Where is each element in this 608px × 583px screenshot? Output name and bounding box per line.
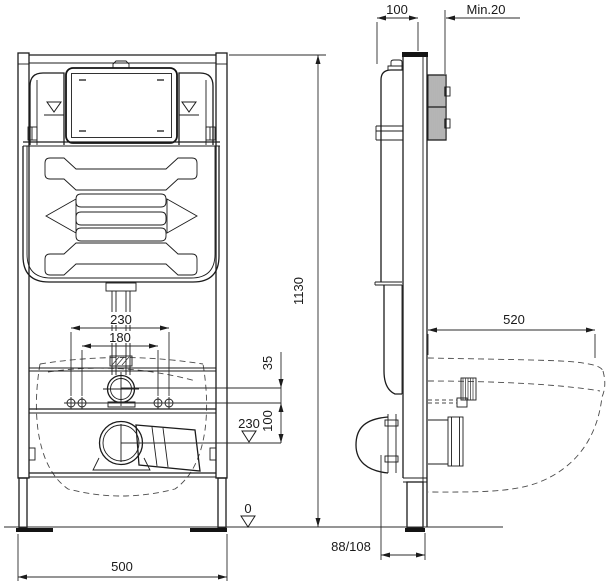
level-label: 230 xyxy=(238,416,260,431)
side-foot-plate xyxy=(405,528,425,532)
left-arrow-emboss xyxy=(46,199,76,233)
left-leg-clamp xyxy=(29,448,35,460)
dim-bolt-spacing-outer: 230 xyxy=(71,312,169,396)
side-view xyxy=(356,52,605,532)
top-tab xyxy=(113,61,129,68)
outlet-elbow xyxy=(93,422,200,472)
flush-pipe xyxy=(106,283,136,375)
access-window xyxy=(66,61,177,143)
frame xyxy=(16,53,227,532)
dim-wall-min: Min.20 xyxy=(445,2,520,74)
dim-label: 1130 xyxy=(291,277,306,305)
tank-emboss-pattern xyxy=(45,158,197,275)
actuator-plate xyxy=(428,75,450,140)
rail-top-cap xyxy=(402,52,428,57)
supply-connection xyxy=(428,378,476,407)
dim-offset-100: 100 xyxy=(260,410,275,432)
dim-label: 180 xyxy=(109,330,131,345)
left-foot-plate xyxy=(16,528,53,532)
right-leg xyxy=(218,478,226,528)
toilet-bowl-outline-side xyxy=(428,358,605,492)
level-mark-floor: 0 xyxy=(241,501,255,527)
installation-drawing-canvas: 100 Min.20 1130 230 180 xyxy=(0,0,608,583)
front-view xyxy=(16,53,227,532)
dim-label: 230 xyxy=(110,312,132,327)
dim-label: 100 xyxy=(386,2,408,17)
level-triangle-icon xyxy=(47,102,61,112)
window-outer-frame xyxy=(66,68,177,143)
right-leg-clamp xyxy=(210,448,216,460)
outlet-elbow-side xyxy=(356,414,398,473)
cistern-tank xyxy=(23,142,220,282)
cistern-side-profile xyxy=(375,60,403,394)
level-mark-outlet: 230 xyxy=(238,416,260,442)
dim-label: 520 xyxy=(503,312,525,327)
right-arrow-emboss xyxy=(167,199,197,233)
window-inner-frame xyxy=(72,74,172,138)
side-bracket-left xyxy=(28,73,64,145)
level-label: 0 xyxy=(244,501,251,516)
flush-bend xyxy=(384,285,402,394)
dim-label: 100 xyxy=(260,410,275,432)
tank-ledge xyxy=(376,126,403,140)
outlet-sleeve xyxy=(428,417,463,466)
dim-label: 500 xyxy=(111,559,133,574)
pipe-collar xyxy=(106,283,136,291)
level-triangle-icon xyxy=(241,516,255,527)
level-triangle-icon xyxy=(242,431,256,442)
side-bracket-right xyxy=(179,73,215,145)
technical-drawing: 100 Min.20 1130 230 180 xyxy=(0,0,608,583)
dim-label: 35 xyxy=(260,356,275,370)
side-leg xyxy=(407,482,423,528)
water-inlet-fitting xyxy=(103,372,139,407)
tank-cap xyxy=(391,60,402,66)
left-leg xyxy=(19,478,27,528)
dim-frame-height: 1130 xyxy=(229,55,326,527)
right-foot-plate xyxy=(190,528,227,532)
dim-label: Min.20 xyxy=(466,2,505,17)
tank-body xyxy=(23,146,219,282)
dim-frame-width: 500 xyxy=(18,534,227,581)
dim-bowl-depth: 520 xyxy=(428,312,595,358)
level-triangle-icon xyxy=(182,102,196,112)
dim-label: 88/108 xyxy=(331,539,371,554)
side-frame-rail xyxy=(402,52,428,532)
dim-bolt-spacing-inner: 180 xyxy=(82,330,158,396)
corner-marks xyxy=(79,80,164,131)
